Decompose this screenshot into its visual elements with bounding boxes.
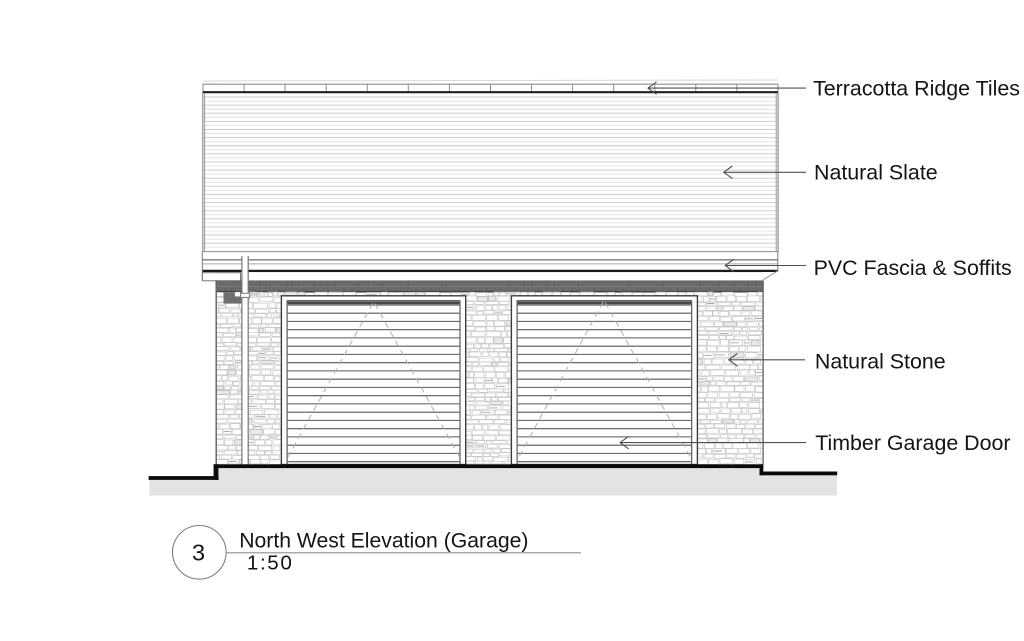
svg-text:Natural Stone: Natural Stone: [815, 349, 946, 373]
svg-text:Timber Garage Door: Timber Garage Door: [815, 431, 1010, 455]
svg-text:3: 3: [192, 539, 205, 565]
svg-text:North West Elevation (Garage): North West Elevation (Garage): [239, 529, 528, 552]
svg-text:PVC Fascia & Soffits: PVC Fascia & Soffits: [814, 256, 1012, 280]
svg-text:1:50: 1:50: [247, 552, 293, 575]
svg-text:Natural Slate: Natural Slate: [814, 161, 938, 185]
svg-text:Terracotta Ridge Tiles: Terracotta Ridge Tiles: [813, 77, 1020, 101]
